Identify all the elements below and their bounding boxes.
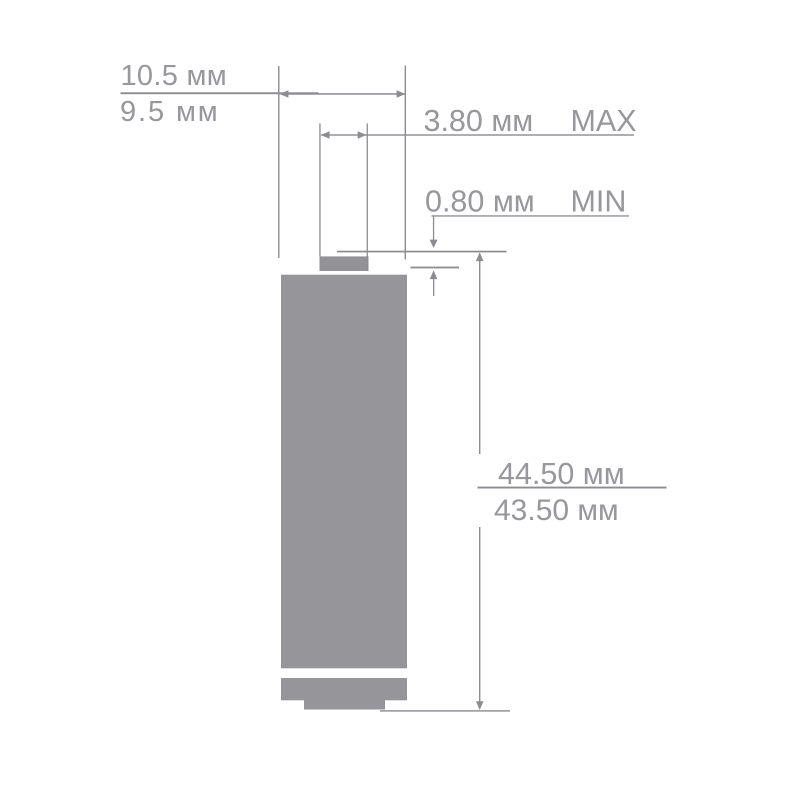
svg-text:43.50 мм: 43.50 мм	[494, 494, 619, 527]
svg-text:MIN: MIN	[571, 184, 627, 218]
svg-text:44.50 мм: 44.50 мм	[498, 457, 625, 491]
svg-text:10.5 мм: 10.5 мм	[121, 60, 227, 92]
svg-text:3.80 мм: 3.80 мм	[424, 104, 534, 138]
svg-text:0.80 мм: 0.80 мм	[425, 184, 535, 218]
svg-text:9.5 мм: 9.5 мм	[120, 96, 220, 128]
svg-text:MAX: MAX	[571, 104, 637, 138]
